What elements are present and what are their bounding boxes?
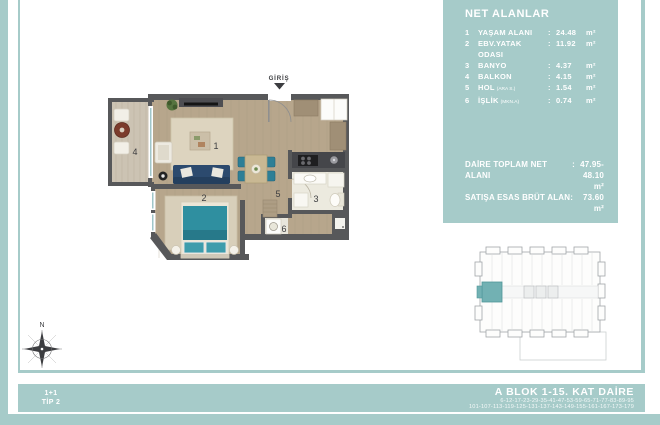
toilet bbox=[330, 193, 344, 207]
row-value: 0.74 bbox=[556, 95, 586, 106]
row-no: 3 bbox=[465, 60, 478, 71]
shaft-dot bbox=[342, 226, 344, 228]
row-label: BALKON bbox=[478, 71, 548, 82]
apartment-floor-plan: GİRİŞ bbox=[95, 72, 375, 274]
brochure-page: NET ALANLAR 1 YAŞAM ALANI : 24.48 m² 2 E… bbox=[0, 0, 660, 425]
row-unit: m² bbox=[586, 82, 602, 93]
row-unit: m² bbox=[586, 95, 602, 106]
row-value: 4.37 bbox=[556, 60, 586, 71]
nightstand bbox=[172, 246, 181, 255]
sofa bbox=[173, 165, 230, 184]
room-number-living: 1 bbox=[213, 141, 218, 151]
row-unit: m² bbox=[586, 71, 602, 82]
row-label: BANYO bbox=[478, 60, 548, 71]
floor-lamp bbox=[159, 172, 168, 181]
area-row: 6 İŞLİK(MKN.A) : 0.74 m² bbox=[465, 95, 602, 108]
armchair bbox=[155, 142, 172, 163]
compass-north-label: N bbox=[39, 322, 44, 329]
bed bbox=[181, 202, 229, 259]
row-no: 4 bbox=[465, 71, 478, 82]
total-net-line: DAİRE TOPLAM NET ALANI : 47.95-48.10 m² bbox=[465, 159, 604, 192]
row-sep: : bbox=[548, 38, 556, 49]
row-sep: : bbox=[548, 95, 556, 106]
row-value: 4.15 bbox=[556, 71, 586, 82]
area-row: 2 EBV.YATAK ODASI : 11.92 m² bbox=[465, 38, 602, 60]
row-value: 11.92 bbox=[556, 38, 586, 49]
unit-type-line1: 1+1 bbox=[28, 389, 74, 398]
net-areas-title: NET ALANLAR bbox=[465, 8, 602, 20]
entrance-label: GİRİŞ bbox=[269, 75, 290, 82]
kitchen-counter bbox=[292, 152, 345, 168]
unit-type-label: 1+1 TİP 2 bbox=[28, 389, 74, 407]
row-no: 5 bbox=[465, 82, 478, 93]
compass-rose: N bbox=[20, 318, 64, 370]
bathroom-vanity bbox=[294, 173, 326, 184]
building-key-plan bbox=[462, 240, 642, 380]
row-sep: : bbox=[548, 60, 556, 71]
area-row: 3 BANYO : 4.37 m² bbox=[465, 60, 602, 71]
coffee-table bbox=[190, 132, 210, 150]
row-label: EBV.YATAK ODASI bbox=[478, 38, 548, 60]
elevator-core bbox=[524, 286, 558, 298]
row-sep: : bbox=[548, 82, 556, 93]
room-number-balcony: 4 bbox=[132, 147, 137, 157]
row-label: YAŞAM ALANI bbox=[478, 27, 548, 38]
row-note: (ARA S.) bbox=[497, 87, 516, 92]
row-note: (MKN.A) bbox=[501, 100, 519, 105]
total-net-label: DAİRE TOPLAM NET ALANI bbox=[465, 159, 572, 192]
room-number-bedroom: 2 bbox=[201, 193, 206, 203]
entrance-arrow-icon bbox=[274, 83, 285, 90]
room-number-bathroom: 3 bbox=[313, 194, 318, 204]
washing-machine bbox=[266, 219, 281, 234]
row-label: HOL(ARA S.) bbox=[478, 82, 548, 95]
row-label: İŞLİK(MKN.A) bbox=[478, 95, 548, 108]
footer-bar: 1+1 TİP 2 A BLOK 1-15. KAT DAİRE 6-12-17… bbox=[18, 384, 645, 412]
tv-unit bbox=[179, 98, 223, 107]
row-value: 1.54 bbox=[556, 82, 586, 93]
unit-type-line2: TİP 2 bbox=[28, 398, 74, 407]
room-number-utility: 6 bbox=[281, 224, 286, 234]
gross-area-label: SATIŞA ESAS BRÜT ALAN bbox=[465, 192, 570, 214]
row-unit: m² bbox=[586, 38, 602, 49]
row-value: 24.48 bbox=[556, 27, 586, 38]
row-no: 1 bbox=[465, 27, 478, 38]
row-no: 6 bbox=[465, 95, 478, 106]
area-row: 4 BALKON : 4.15 m² bbox=[465, 71, 602, 82]
row-no: 2 bbox=[465, 38, 478, 49]
block-title: A BLOK 1-15. KAT DAİRE bbox=[469, 386, 634, 398]
shower-cabin bbox=[294, 193, 308, 207]
total-net-value: 47.95-48.10 m² bbox=[580, 159, 604, 192]
balcony-table bbox=[115, 123, 130, 138]
net-areas-panel: NET ALANLAR 1 YAŞAM ALANI : 24.48 m² 2 E… bbox=[443, 0, 618, 223]
shower-tray bbox=[328, 173, 344, 187]
area-row: 1 YAŞAM ALANI : 24.48 m² bbox=[465, 27, 602, 38]
row-unit: m² bbox=[586, 27, 602, 38]
unit-numbers-line2: 101-107-113-119-125-131-137-143-149-155-… bbox=[469, 404, 634, 410]
entrance-door-leaf bbox=[268, 100, 270, 122]
bottom-edge-band bbox=[0, 414, 660, 425]
compass-center bbox=[40, 347, 43, 350]
totals-block: DAİRE TOPLAM NET ALANI : 47.95-48.10 m² … bbox=[465, 159, 604, 214]
left-edge-band bbox=[0, 0, 8, 425]
nightstand bbox=[230, 246, 239, 255]
plant bbox=[167, 100, 178, 111]
row-unit: m² bbox=[586, 60, 602, 71]
block-info: A BLOK 1-15. KAT DAİRE 6-12-17-23-29-35-… bbox=[469, 386, 634, 410]
room-number-hall: 5 bbox=[275, 189, 280, 199]
row-sep: : bbox=[548, 71, 556, 82]
hall-cabinet bbox=[263, 200, 277, 217]
area-row: 5 HOL(ARA S.) : 1.54 m² bbox=[465, 82, 602, 95]
row-sep: : bbox=[548, 27, 556, 38]
gross-area-line: SATIŞA ESAS BRÜT ALAN : 73.60 m² bbox=[465, 192, 604, 214]
gross-area-value: 73.60 m² bbox=[578, 192, 604, 214]
